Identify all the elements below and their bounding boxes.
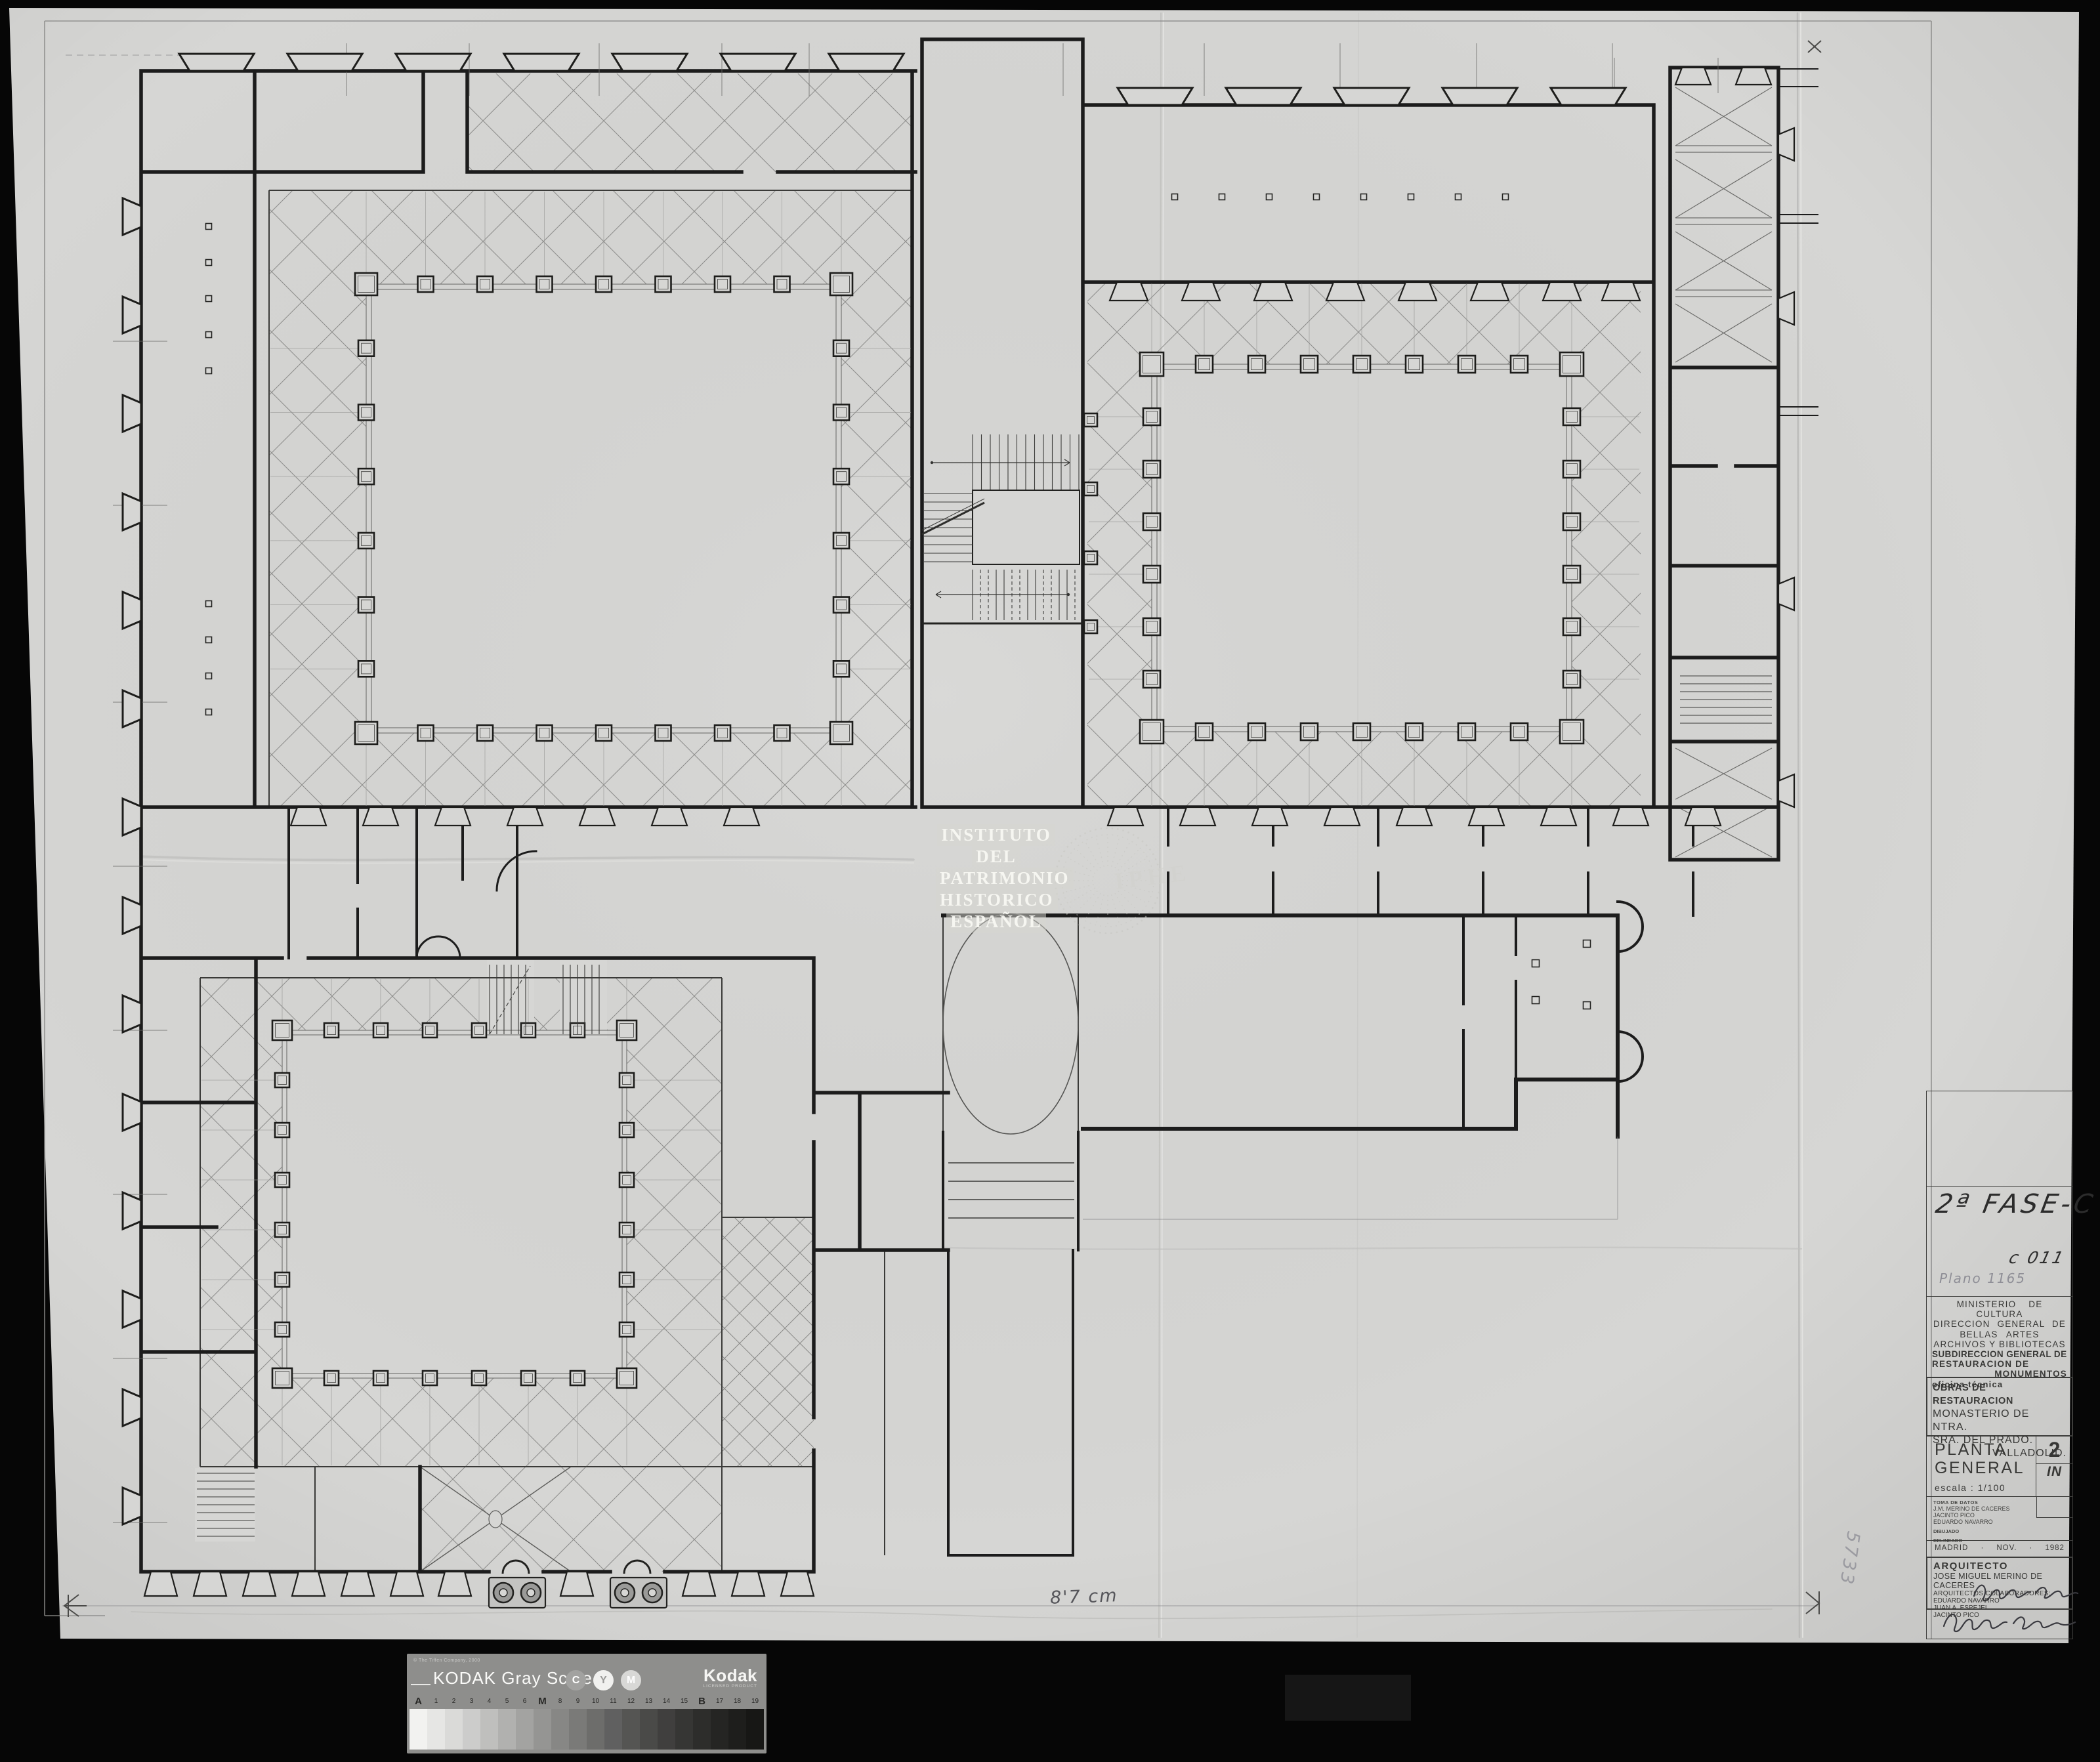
- gray-patch-label: 1: [427, 1696, 445, 1708]
- gray-patch-label: 6: [516, 1696, 534, 1708]
- gray-patch-label: 15: [675, 1696, 693, 1708]
- scanned-drawing-page: IPHE INSTITUTO DEL PATRIMONIO HISTORICO …: [0, 0, 2100, 1762]
- gray-patch: [746, 1709, 764, 1750]
- cyan-patch-circle: C: [566, 1670, 586, 1690]
- ministry-line: ARCHIVOS Y BIBLIOTECAS: [1932, 1339, 2067, 1349]
- gray-patch: [498, 1709, 516, 1750]
- gray-patch-label: 9: [569, 1696, 587, 1708]
- kodak-gray-scale-card: © The Tiffen Company, 2000 KODAK Gray Sc…: [407, 1654, 766, 1753]
- subdirection-line: SUBDIRECCION GENERAL DE: [1932, 1349, 2067, 1359]
- gray-patch-label: 11: [604, 1696, 622, 1708]
- gray-patch-label: 12: [622, 1696, 640, 1708]
- works-title: OBRAS DE RESTAURACION: [1933, 1381, 2067, 1408]
- architect-label: ARQUITECTO: [1933, 1561, 2066, 1572]
- archive-watermark: INSTITUTO DEL PATRIMONIO HISTORICO ESPAÑ…: [936, 824, 1057, 933]
- sheet-number-suffix: IN: [2036, 1464, 2072, 1480]
- collaborator: EDUARDO NAVARRO: [1933, 1597, 2066, 1605]
- ministry-line: BELLAS ARTES: [1932, 1330, 2067, 1339]
- title-block-works-cell: OBRAS DE RESTAURACION MONASTERIO DE NTRA…: [1926, 1377, 2073, 1437]
- sheet-number: 2: [2036, 1438, 2072, 1462]
- watermark-line: HISTORICO: [936, 889, 1058, 911]
- gray-patch-label: 18: [728, 1696, 746, 1708]
- gray-patch: [551, 1709, 569, 1750]
- gray-patch: [622, 1709, 640, 1750]
- gray-patch-label: 8: [551, 1696, 569, 1708]
- gray-patch: [693, 1709, 711, 1750]
- title-block-ministry-cell: MINISTERIO DE CULTURA DIRECCION GENERAL …: [1926, 1296, 2073, 1377]
- title-block-empty-cell: [1926, 1091, 2073, 1187]
- gray-patch: [640, 1709, 658, 1750]
- gray-patch: [587, 1709, 604, 1750]
- month-label: NOV.: [1996, 1541, 2017, 1557]
- gray-patch-label: 19: [746, 1696, 764, 1708]
- gray-patch: [516, 1709, 534, 1750]
- gray-patch: [480, 1709, 498, 1750]
- scale-label: escala : 1/100: [1935, 1482, 2005, 1493]
- gray-patch: [675, 1709, 693, 1750]
- kodak-logo: Kodak: [703, 1666, 757, 1686]
- architect-name: JOSE MIGUEL MERINO DE CACERES: [1933, 1572, 2066, 1590]
- scanner-bed-object: [1285, 1675, 1411, 1721]
- gray-patch: [658, 1709, 675, 1750]
- watermark-line: INSTITUTO: [937, 824, 1055, 846]
- gray-patches: [409, 1709, 764, 1750]
- title-block-architect-cell: ARQUITECTO JOSE MIGUEL MERINO DE CACERES…: [1926, 1557, 2073, 1610]
- toma-name: EDUARDO NAVARRO: [1933, 1519, 2066, 1525]
- year-label: 1982: [2045, 1541, 2065, 1557]
- measure-annotation: 8'7 cm: [1049, 1585, 1118, 1608]
- title-block-signature-cell: [1926, 1609, 2073, 1639]
- gray-patch-label: A: [409, 1696, 427, 1708]
- gray-patch-label: 17: [711, 1696, 728, 1708]
- gray-patch-label: B: [693, 1696, 711, 1708]
- gray-patch: [445, 1709, 463, 1750]
- gray-patch-label: 5: [498, 1696, 516, 1708]
- gray-patch: [604, 1709, 622, 1750]
- gray-patch: [409, 1709, 427, 1750]
- toma-name: JACINTO PICO: [1933, 1512, 2066, 1519]
- gray-patch-label: 3: [463, 1696, 480, 1708]
- gray-patch: [427, 1709, 445, 1750]
- gray-patch-label: 4: [480, 1696, 498, 1708]
- gray-patch: [711, 1709, 728, 1750]
- gray-patch-label: 14: [658, 1696, 675, 1708]
- title-block-credits-cell: TOMA DE DATOS J.M. MERINO DE CACERES JAC…: [1926, 1496, 2073, 1541]
- gray-patch: [728, 1709, 746, 1750]
- sheet-number-cell: 2 IN: [2036, 1437, 2072, 1496]
- gray-patch: [569, 1709, 587, 1750]
- magenta-patch-circle: M: [621, 1670, 641, 1690]
- gray-patch-label: 10: [587, 1696, 604, 1708]
- licensed-product-label: LICENSED PRODUCT: [703, 1684, 757, 1689]
- gray-patch-label: 13: [640, 1696, 658, 1708]
- watermark-line: DEL: [972, 846, 1020, 868]
- place-label: MADRID: [1935, 1541, 1968, 1557]
- title-block-date-cell: MADRID · NOV. · 1982: [1926, 1540, 2073, 1557]
- dibujado-label: DIBUJADO: [1933, 1528, 2066, 1534]
- ministry-line: DIRECCION GENERAL DE: [1932, 1319, 2067, 1329]
- ministry-line: MINISTERIO DE CULTURA: [1932, 1299, 2067, 1319]
- gray-patch-label: M: [534, 1696, 551, 1708]
- subdirection-line: RESTAURACION DE: [1932, 1359, 2067, 1369]
- watermark-line: ESPAÑOL: [946, 911, 1046, 933]
- watermark-line: PATRIMONIO: [936, 868, 1074, 889]
- monument-line: MONASTERIO DE NTRA.: [1933, 1408, 2067, 1434]
- title-block-sheet-cell: PLANTA GENERAL escala : 1/100 2 IN: [1926, 1436, 2073, 1497]
- collaborators-label: ARQUITECTOS COLABORADORES:: [1933, 1590, 2066, 1597]
- toma-name: J.M. MERINO DE CACERES: [1933, 1505, 2066, 1512]
- toma-label: TOMA DE DATOS: [1933, 1500, 2066, 1505]
- title-block-phase-cell: [1926, 1186, 2073, 1297]
- gray-patch: [463, 1709, 480, 1750]
- tiffen-copyright: © The Tiffen Company, 2000: [413, 1658, 480, 1663]
- yellow-patch-circle: Y: [593, 1670, 614, 1690]
- sheet-title: PLANTA GENERAL: [1935, 1440, 2025, 1477]
- gray-patch: [534, 1709, 551, 1750]
- gray-scale-labels: A123456M89101112131415B171819: [409, 1696, 764, 1708]
- gray-patch-label: 2: [445, 1696, 463, 1708]
